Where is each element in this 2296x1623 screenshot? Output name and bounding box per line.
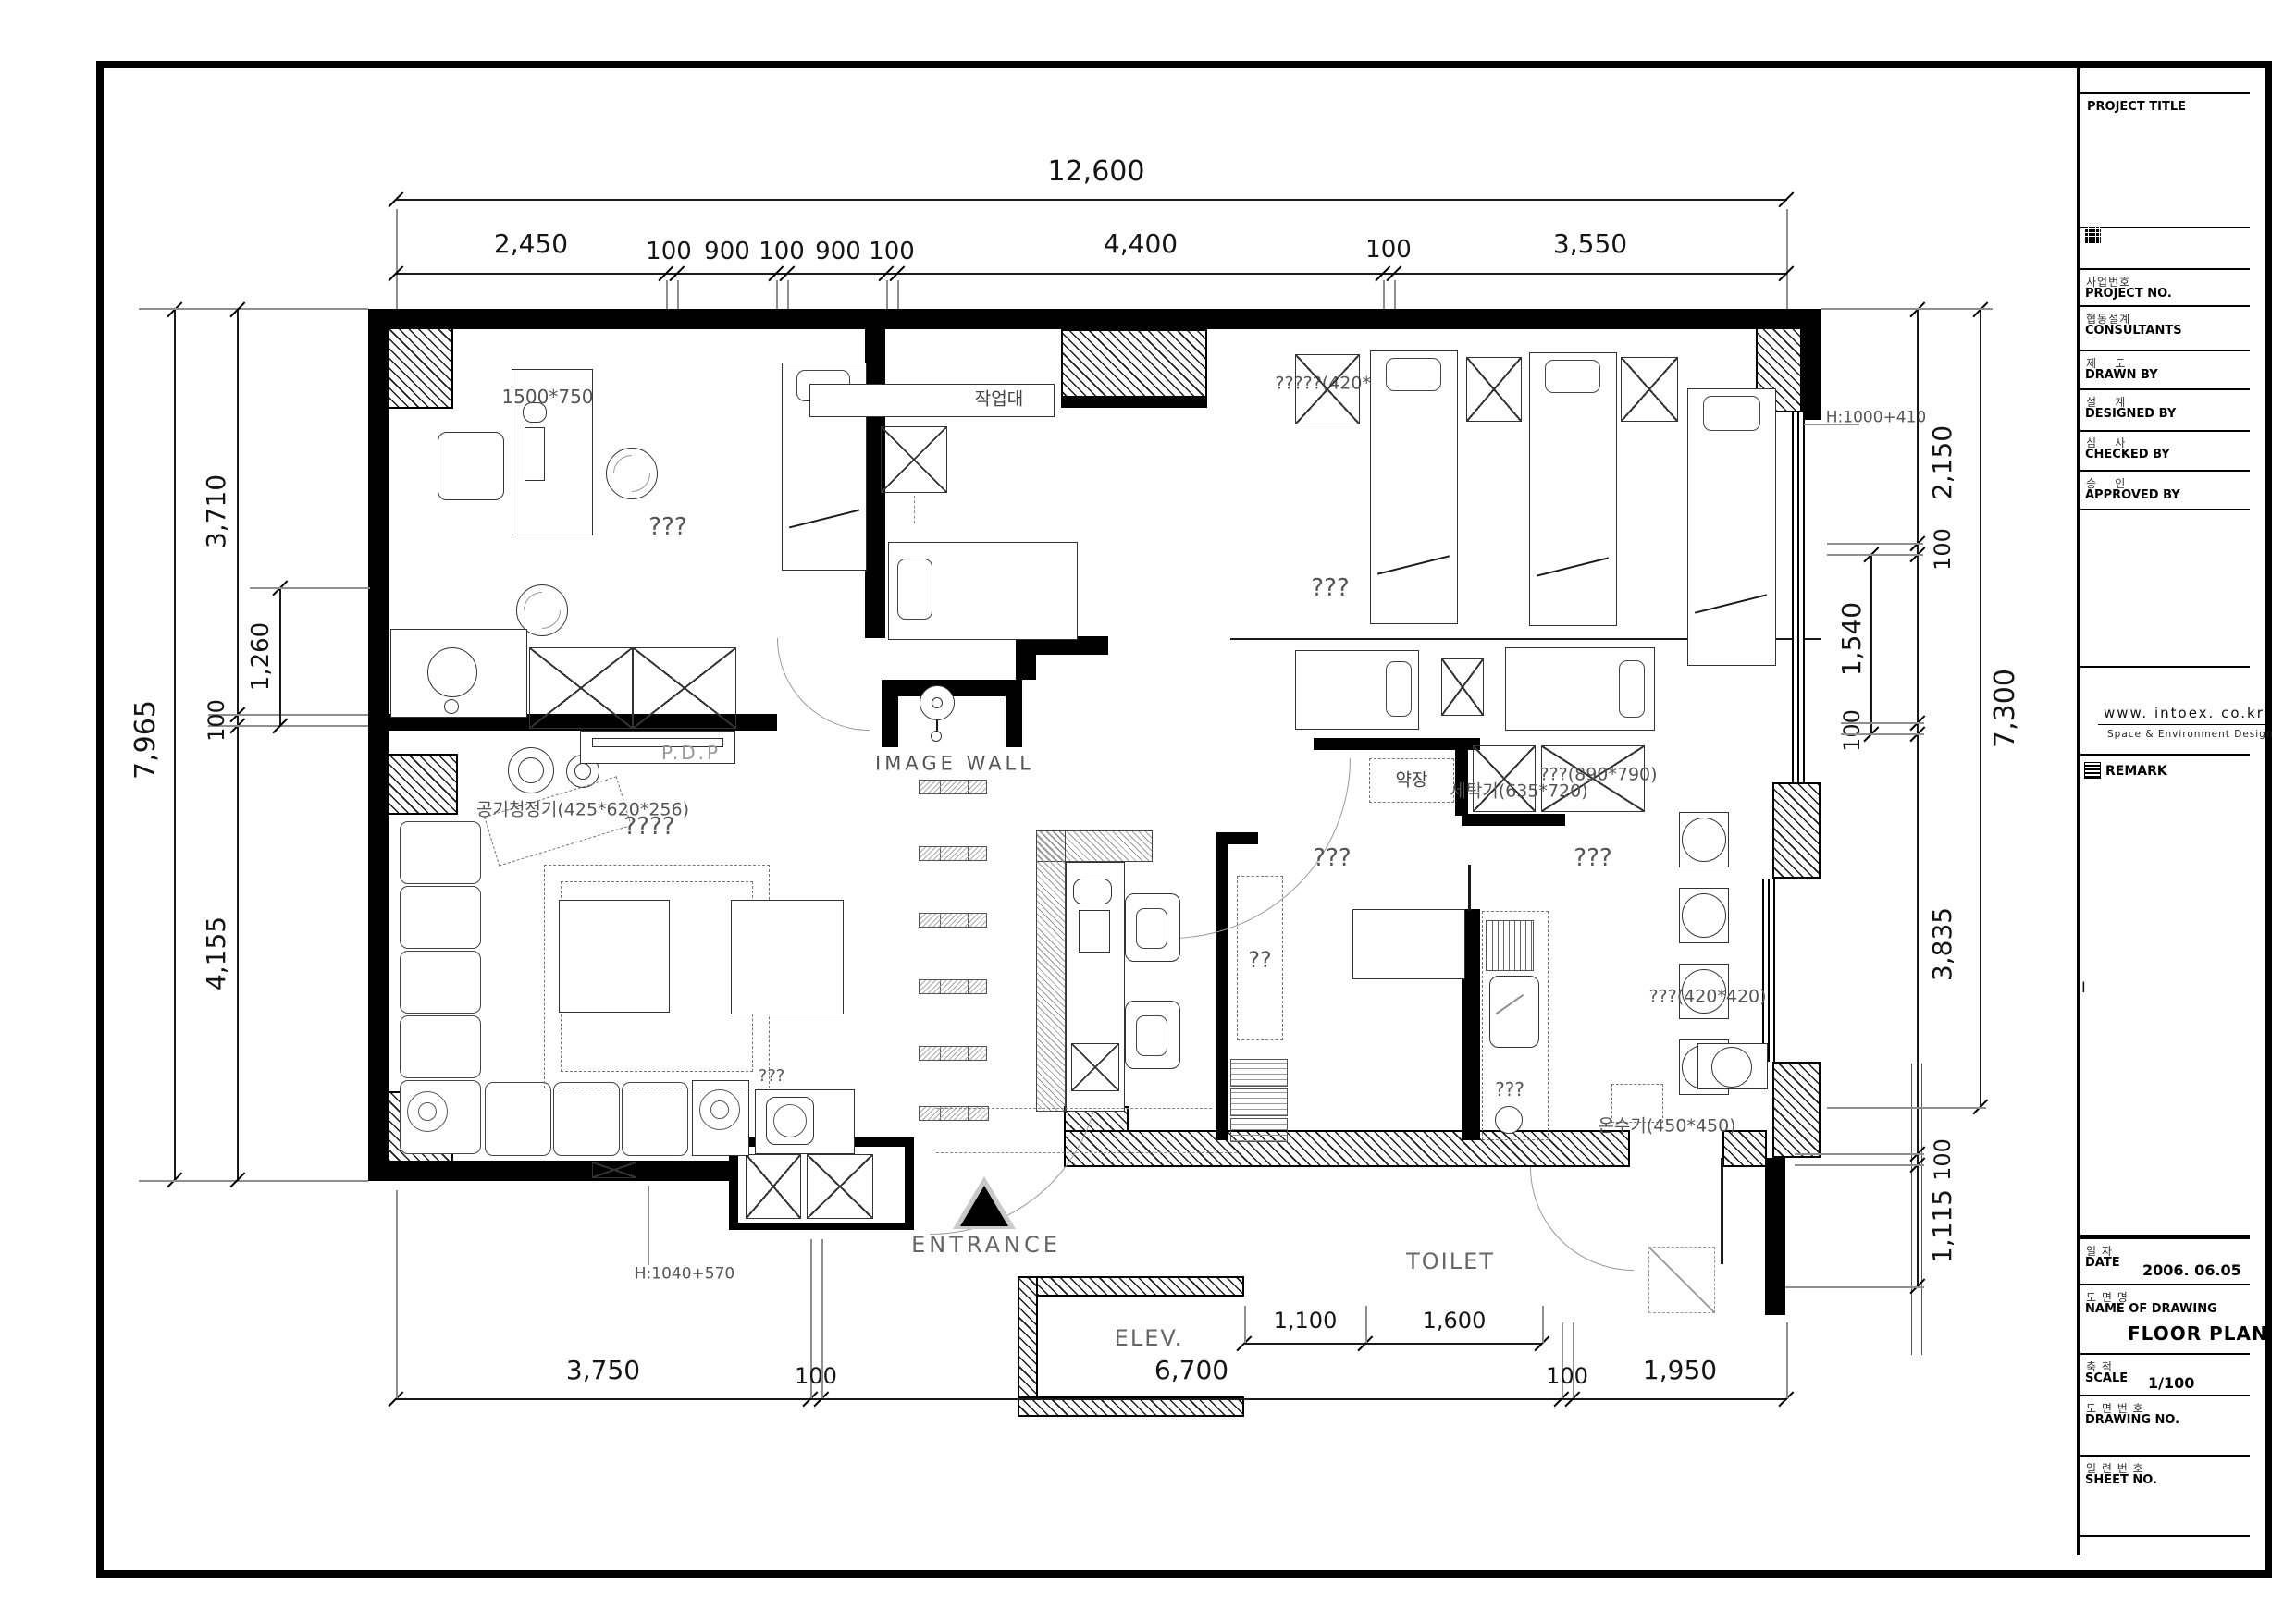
dim-line <box>1980 309 1981 1108</box>
label-medicine-cabinet: 약장 <box>1396 772 1428 790</box>
gline <box>1786 209 1788 309</box>
entrance-arrow <box>960 1186 1008 1226</box>
pillow <box>1703 396 1760 431</box>
dim: 100 <box>795 1365 837 1387</box>
sofa-seat <box>400 1015 481 1078</box>
floor-strip <box>919 846 987 861</box>
cabinet <box>1071 1043 1119 1091</box>
dim-line <box>237 309 239 1181</box>
wall <box>905 1137 914 1230</box>
table <box>559 900 670 1013</box>
basin <box>427 647 477 697</box>
side-table <box>1466 357 1522 422</box>
side-table <box>1621 357 1678 422</box>
date-value: 2006. 06.05 <box>2142 1261 2241 1279</box>
label-pdp: P.D.P <box>661 744 721 762</box>
wall <box>1800 309 1821 420</box>
dim: 3,710 <box>204 474 229 548</box>
circle <box>1682 818 1726 862</box>
pillow <box>1386 661 1412 717</box>
room-label: ??? <box>648 515 686 539</box>
remark-mark: I <box>2081 978 2086 996</box>
pillow <box>1619 660 1645 718</box>
dim: 100 <box>646 240 692 264</box>
sofa-seat <box>553 1082 620 1156</box>
gline <box>1841 722 1924 724</box>
scale-value: 1/100 <box>2148 1374 2194 1392</box>
sofa-seat <box>400 951 481 1014</box>
title-block-divider <box>2077 68 2080 1555</box>
label-entrance: ENTRANCE <box>911 1234 1061 1256</box>
label-sofa-height: H:1040+570 <box>635 1267 734 1283</box>
gline <box>1827 1107 1986 1109</box>
dim: 100 <box>759 240 805 264</box>
room-label: ???? <box>623 815 674 839</box>
circt <box>710 1100 729 1119</box>
cabinet <box>529 647 633 729</box>
side-table <box>1441 658 1484 716</box>
dim: 100 <box>869 240 915 264</box>
circle <box>931 731 942 742</box>
pill <box>1136 908 1167 949</box>
towel-shelf <box>1230 1088 1288 1116</box>
sofa-seat <box>622 1082 688 1156</box>
pill <box>1136 1015 1167 1056</box>
dim-line <box>1870 555 1872 734</box>
sofa-seat <box>485 1082 551 1156</box>
gline <box>139 308 368 310</box>
dim: 3,750 <box>566 1358 640 1383</box>
circle <box>574 763 591 780</box>
circle <box>518 757 544 783</box>
counter <box>1036 830 1066 1112</box>
cabinet <box>881 426 947 493</box>
dim: 1,950 <box>1643 1358 1717 1383</box>
pillow <box>1545 360 1600 393</box>
dim: 2,150 <box>1930 425 1956 499</box>
remark-label: REMARK <box>2105 764 2167 779</box>
planter <box>1648 1247 1715 1313</box>
circle <box>1682 893 1726 938</box>
date-label: DATE <box>2085 1256 2120 1270</box>
dim-line <box>396 1398 1787 1400</box>
towel-shelf <box>1230 1059 1288 1087</box>
gline <box>208 714 368 716</box>
gline <box>886 280 888 309</box>
pillow <box>1386 358 1441 391</box>
gline <box>1785 1286 1924 1288</box>
gline <box>396 209 398 309</box>
window <box>1762 879 1775 1062</box>
circle <box>932 697 943 708</box>
gline <box>787 280 789 309</box>
water-purifier <box>1495 1106 1523 1134</box>
line <box>1468 865 1471 911</box>
drawing-sheet: 1500*750???공기청정기(425*620*256)P.D.P작업대IMA… <box>0 0 2296 1623</box>
dim-line <box>279 588 281 726</box>
wall <box>368 309 389 1181</box>
label-workbench: 작업대 <box>975 391 1023 409</box>
office-chair <box>438 432 504 500</box>
gline <box>776 280 778 309</box>
sofa-seat <box>400 821 481 884</box>
wall <box>729 1223 914 1230</box>
dim: 100 <box>1841 709 1863 752</box>
floor-strip <box>919 979 987 994</box>
label-window-height: H:1000+410 <box>1826 411 1926 426</box>
dim: 1,540 <box>1839 602 1865 676</box>
room-label: ??? <box>1574 846 1611 870</box>
pillow <box>897 559 932 620</box>
wall <box>1765 1158 1785 1315</box>
label-elevator: ELEV. <box>1115 1327 1184 1349</box>
remark-icon <box>2084 762 2101 779</box>
label: ??? <box>1495 1080 1524 1099</box>
gline <box>1795 1164 1924 1166</box>
drawn-by-label: DRAWN BY <box>2085 368 2158 382</box>
circle <box>1711 1047 1752 1088</box>
hdash <box>936 1152 1241 1153</box>
leader <box>648 1186 649 1265</box>
dim: 1,100 <box>1274 1309 1338 1332</box>
dim: 100 <box>1365 238 1412 262</box>
gline <box>1383 280 1385 309</box>
vent <box>592 1162 636 1178</box>
dim: 3,550 <box>1553 231 1627 257</box>
floor-strip <box>919 913 987 928</box>
dim: 7,300 <box>1992 669 2019 748</box>
wall-pier <box>1772 782 1821 879</box>
room-label: ??? <box>1313 846 1351 870</box>
gline <box>897 280 899 309</box>
dim-line <box>1917 309 1919 1287</box>
elevator-wall <box>1018 1276 1244 1297</box>
dim: 100 <box>1546 1365 1588 1387</box>
gline <box>208 725 368 727</box>
label-washer: 세탁기(635*720) <box>1450 783 1587 801</box>
dim: 100 <box>1932 528 1954 571</box>
dim-line <box>396 273 1787 275</box>
company-logo <box>2085 227 2101 243</box>
label-desk-size: 1500*750 <box>501 387 593 406</box>
gline <box>1821 308 1993 310</box>
bed <box>1529 352 1617 626</box>
wall-pier <box>1772 1062 1821 1158</box>
gline <box>666 280 668 309</box>
circt <box>418 1102 437 1121</box>
floor-strip <box>919 780 987 794</box>
approved-by-label: APPROVED BY <box>2085 488 2180 502</box>
drawing-no-label: DRAWING NO. <box>2085 1413 2179 1427</box>
elevator-shaft <box>746 1154 801 1219</box>
label-image-wall: IMAGE WALL <box>875 755 1034 774</box>
company-tagline: Space & Environment Design <box>2107 729 2274 740</box>
bed <box>1370 350 1458 624</box>
gline <box>1244 1306 1246 1343</box>
cabinet <box>633 647 736 729</box>
dim: 4,155 <box>204 916 229 990</box>
washer <box>1473 745 1536 812</box>
side-table <box>1295 354 1360 424</box>
dim: 100 <box>205 699 228 742</box>
circle <box>444 699 459 714</box>
gline <box>1795 1153 1924 1155</box>
sheet-no-label: SHEET NO. <box>2085 1473 2157 1487</box>
dim: 7,965 <box>132 700 160 780</box>
company-website: www. intoex. co.kr <box>2098 705 2270 725</box>
gline <box>1394 280 1396 309</box>
gline <box>1365 1306 1367 1343</box>
dim: 1,115 <box>1930 1189 1956 1263</box>
monitor <box>1073 879 1112 904</box>
label: ???(420*420) <box>1648 989 1766 1006</box>
dim: 12,600 <box>1048 158 1145 186</box>
dim: 2,450 <box>494 231 568 257</box>
wall <box>368 1161 738 1181</box>
gline <box>139 1180 368 1182</box>
room-label: ??? <box>1311 576 1349 600</box>
wall <box>1462 814 1565 826</box>
drawing-name-value: FLOOR PLAN <box>2128 1322 2268 1345</box>
table <box>731 900 844 1014</box>
dim: 1,260 <box>249 622 273 691</box>
gline <box>250 587 370 589</box>
label: ??? <box>759 1068 785 1085</box>
label-toilet: TOILET <box>1406 1250 1495 1273</box>
floor-strip <box>919 1046 987 1061</box>
dim: 4,400 <box>1104 231 1178 257</box>
vdash <box>914 496 915 523</box>
designed-by-label: DESIGNED BY <box>2085 407 2176 421</box>
dim: 900 <box>815 240 861 264</box>
label: ???(890*790) <box>1539 767 1657 784</box>
drain-board <box>1486 920 1534 971</box>
towel-shelf <box>1230 1118 1288 1142</box>
gline <box>1827 543 1923 545</box>
gline <box>396 1190 398 1398</box>
gline <box>1542 1306 1544 1343</box>
scale-label: SCALE <box>2085 1371 2128 1385</box>
circt <box>773 1104 807 1137</box>
dim: 100 <box>1932 1138 1954 1181</box>
desk <box>1352 909 1465 979</box>
image-wall <box>882 680 898 747</box>
dim: 3,835 <box>1930 907 1956 981</box>
dim: 6,700 <box>1154 1358 1228 1383</box>
checked-by-label: CHECKED BY <box>2085 448 2170 461</box>
dim: 1,600 <box>1423 1309 1487 1332</box>
door-leaf <box>1721 1158 1723 1264</box>
image-wall <box>1006 680 1022 747</box>
gline <box>1841 733 1924 735</box>
elevator-shaft <box>807 1154 873 1219</box>
keyboard <box>1079 910 1110 953</box>
keyboard <box>525 427 545 481</box>
project-title-label: PROJECT TITLE <box>2087 100 2186 114</box>
gline <box>677 280 679 309</box>
window <box>1792 412 1805 782</box>
wall-pier <box>1061 329 1207 403</box>
consultants-label: CONSULTANTS <box>2085 324 2182 338</box>
dim-line <box>396 199 1787 201</box>
sofa-seat <box>400 886 481 949</box>
room-label: ?? <box>1248 949 1271 971</box>
label-water-heater: 온수기(450*450) <box>1598 1118 1735 1136</box>
hdash <box>936 1108 1212 1109</box>
dim: 900 <box>704 240 750 264</box>
wall <box>1061 396 1207 408</box>
gline <box>1786 1322 1788 1398</box>
drawing-name-label: NAME OF DRAWING <box>2085 1302 2217 1316</box>
gline <box>1827 554 1923 556</box>
dim-line <box>174 309 176 1181</box>
dim-line <box>1244 1343 1542 1345</box>
wall <box>368 309 1821 329</box>
project-no-label: PROJECT NO. <box>2085 287 2172 301</box>
